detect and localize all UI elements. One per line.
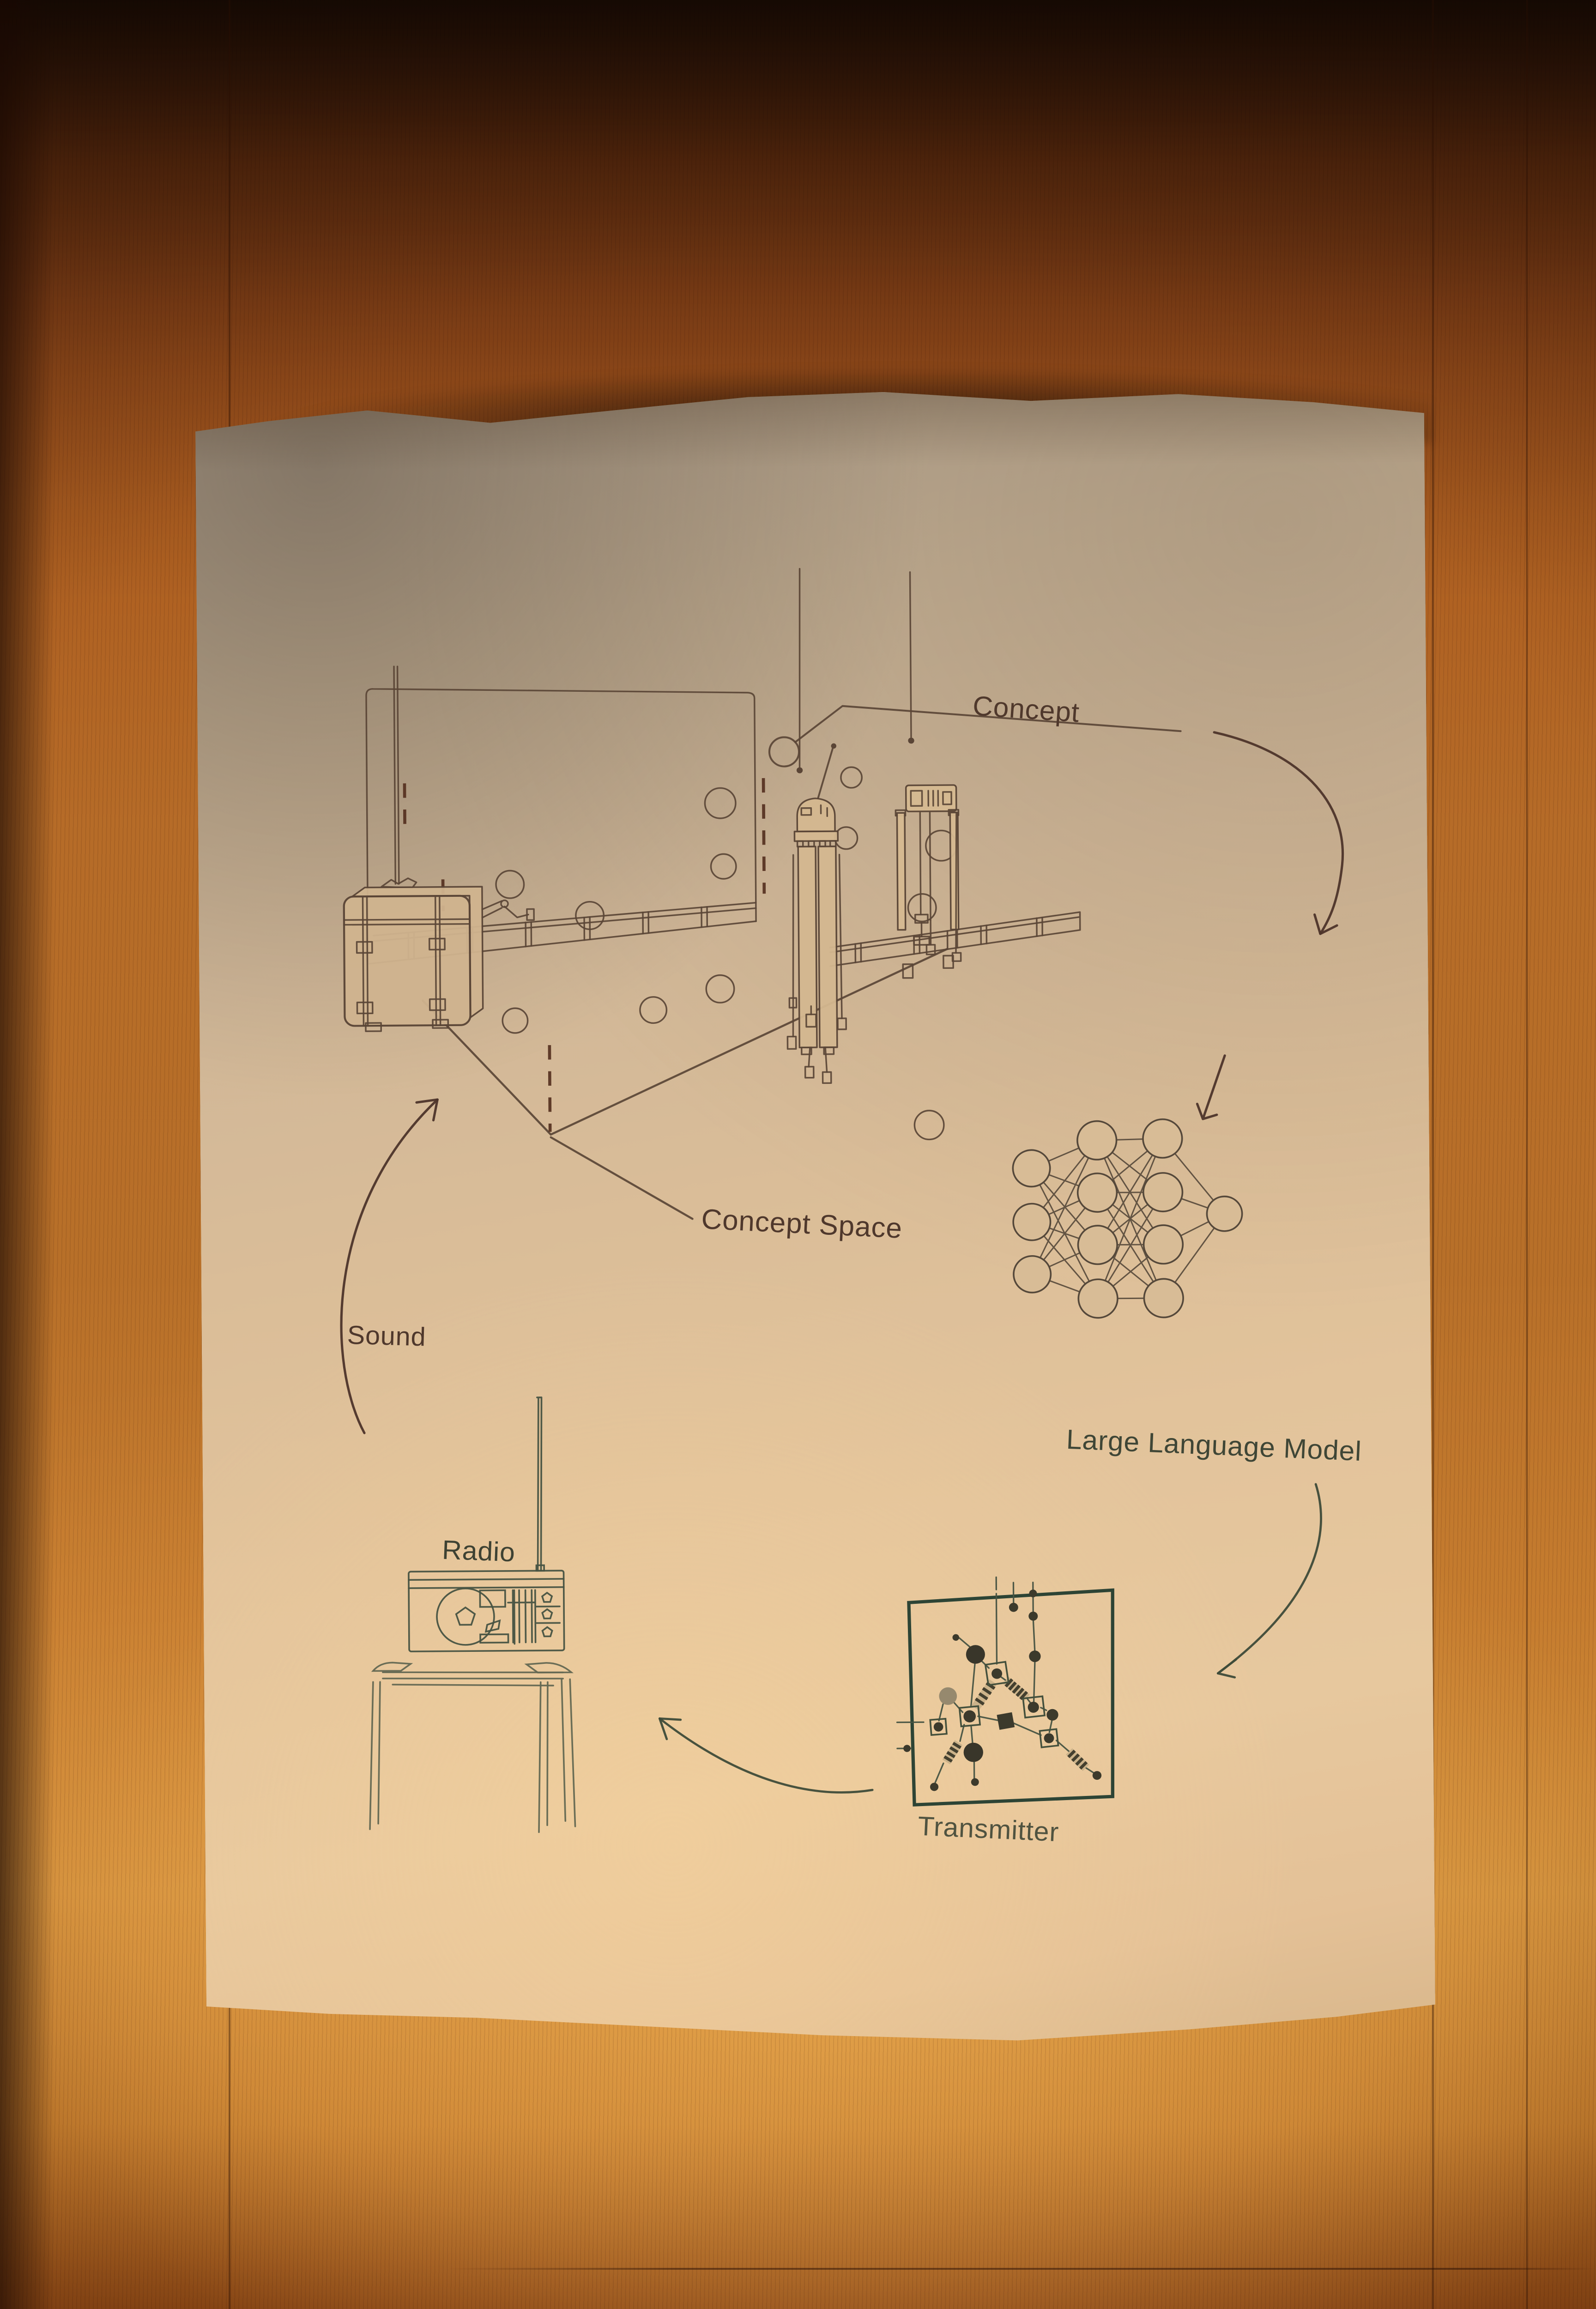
circuit-resistor <box>944 1742 961 1762</box>
concept-circle <box>908 894 937 922</box>
concept-circle <box>915 1111 944 1140</box>
wood-seam <box>1526 0 1528 2309</box>
nn-node <box>1143 1119 1182 1158</box>
concept-space-callout: Concept Space <box>551 1135 903 1247</box>
concept-circle <box>706 975 734 1003</box>
wood-plank-gap <box>447 2268 1596 2270</box>
concept-circles <box>496 767 959 1142</box>
radio-stand <box>369 1661 575 1833</box>
concept-circle <box>841 767 862 788</box>
concept-circle <box>496 870 524 898</box>
concept-space-leader-line <box>551 1136 693 1220</box>
label-sound: Sound <box>347 1320 426 1352</box>
nn-node <box>1077 1121 1117 1160</box>
nn-node <box>1207 1197 1243 1232</box>
diagram-svg: Concept Concept Space <box>195 388 1436 2048</box>
concept-circle <box>502 1008 528 1033</box>
nn-node <box>1014 1256 1051 1293</box>
nn-node <box>1078 1279 1118 1318</box>
neural-network <box>1013 1119 1243 1318</box>
nn-edges <box>1032 1138 1226 1299</box>
label-radio: Radio <box>442 1535 516 1567</box>
arrow-llm-to-transmitter <box>1217 1484 1322 1678</box>
concept-circle <box>705 788 736 818</box>
transmitter-circuit <box>896 1577 1102 1791</box>
photo-scene: Concept Concept Space <box>0 0 1596 2309</box>
hanging-case-left <box>343 665 535 1031</box>
wood-edge-shadow <box>0 0 54 2309</box>
nn-node <box>1013 1150 1050 1187</box>
circuit-big-pad <box>964 1743 984 1762</box>
hanging-lines <box>795 568 914 774</box>
radio <box>367 1397 575 1833</box>
nn-node <box>1013 1203 1051 1240</box>
circuit-filled-square <box>997 1712 1015 1730</box>
nn-node <box>1078 1173 1117 1212</box>
radio-body <box>409 1571 564 1651</box>
concept-circle <box>640 997 667 1023</box>
arrow-transmitter-to-radio <box>660 1717 873 1794</box>
nn-node <box>1143 1173 1183 1212</box>
circuit-traces <box>896 1577 1094 1783</box>
floor-outline <box>423 949 949 1136</box>
nn-node <box>1144 1225 1183 1264</box>
circuit-resistor <box>1069 1751 1087 1769</box>
concept-space-illustration: Concept Concept Space <box>342 566 1185 1248</box>
circuit-resistor <box>975 1682 995 1708</box>
radio-antenna <box>535 1397 544 1571</box>
concept-circle <box>711 854 737 879</box>
transmitter <box>896 1577 1114 1805</box>
arrow-sound-to-space <box>340 1100 440 1433</box>
knob <box>542 1593 552 1602</box>
nn-node <box>1144 1279 1184 1318</box>
hanging-case-center <box>786 743 846 1083</box>
control-panel <box>480 1590 560 1644</box>
label-transmitter: Transmitter <box>917 1811 1060 1847</box>
knob <box>543 1609 552 1619</box>
label-concept-space: Concept Space <box>701 1203 903 1245</box>
arrow-into-network <box>1197 1056 1225 1119</box>
speaker-center <box>456 1608 475 1625</box>
circuit-dots <box>902 1589 1102 1791</box>
knob <box>543 1627 552 1636</box>
speaker-grille <box>437 1588 495 1645</box>
label-concept: Concept <box>972 690 1081 728</box>
label-llm: Large Language Model <box>1066 1424 1362 1467</box>
nn-node <box>1078 1226 1118 1264</box>
paper-sheet: Concept Concept Space <box>195 388 1436 2048</box>
arrow-concept-to-llm <box>1215 731 1344 935</box>
